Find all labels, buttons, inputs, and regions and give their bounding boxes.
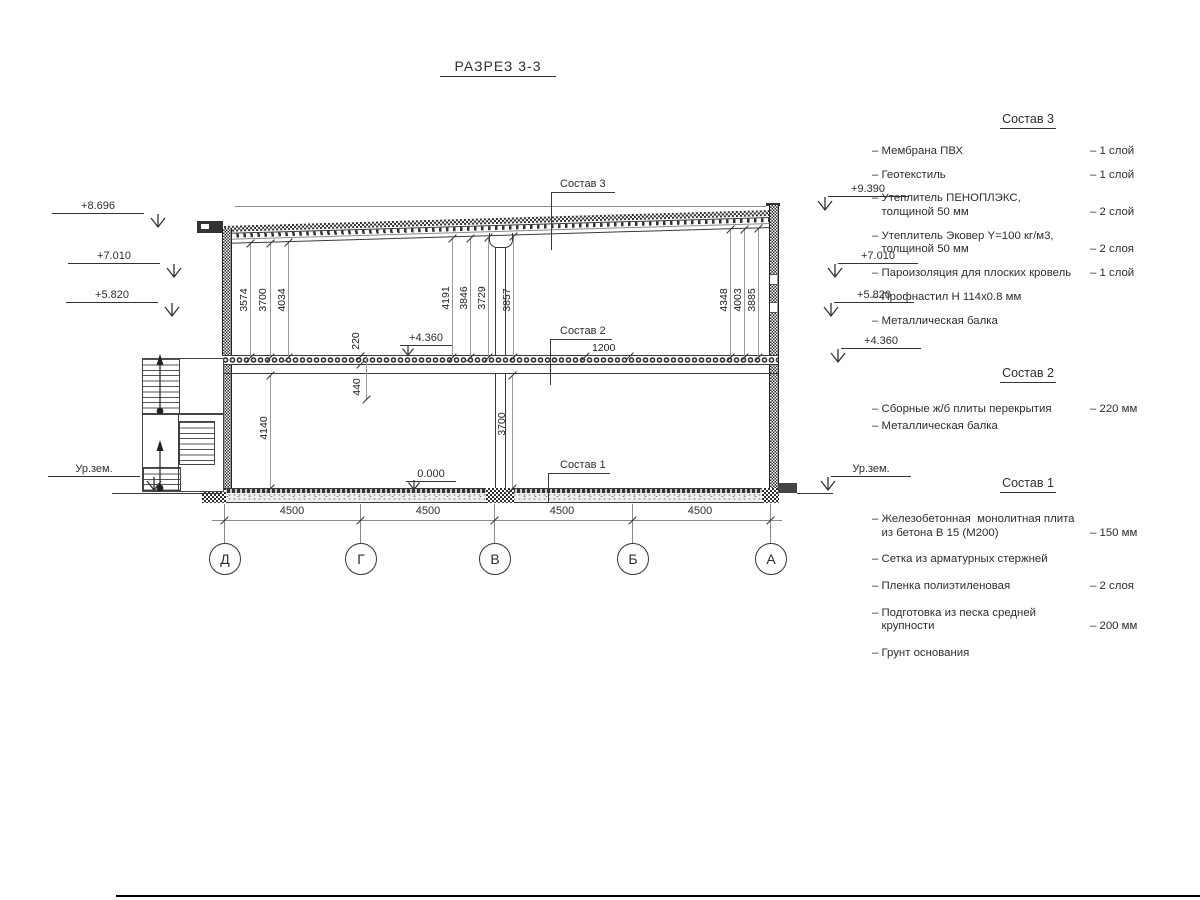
elevation-arrow-icon: [147, 214, 169, 231]
roof-gutter-cap: [197, 221, 223, 233]
axis-bubble-d: Д: [209, 543, 241, 575]
dim-line: [366, 356, 367, 400]
legend-section-sostav2: Состав 2 – Сборные ж/б плиты перекрытия–…: [872, 366, 1184, 436]
stair-divider: [178, 414, 179, 490]
elevation-arrow-icon: [814, 197, 836, 214]
footing-right: [762, 488, 779, 503]
legend-item: – Профнастил Н 114х0.8 мм: [872, 291, 1184, 305]
elevation-arrow-icon: [161, 303, 183, 320]
level-left-ground: Ур.зем.: [48, 463, 140, 477]
elevation-arrow-icon: [399, 346, 417, 358]
gutter-cap-inner: [201, 224, 209, 229]
callout-underline: [551, 192, 615, 193]
dim-line: [744, 229, 745, 358]
level-left-7010: +7.010: [68, 250, 160, 264]
dim-line: [488, 237, 489, 358]
dim-line: [270, 375, 271, 489]
elevation-arrow-icon: [163, 264, 185, 281]
floor-slab: [222, 356, 778, 364]
bay-dim: 4500: [360, 505, 496, 517]
legend-item: – Грунт основания: [872, 647, 1184, 661]
dim-line: [270, 243, 271, 358]
bay-dim: 4500: [224, 505, 360, 517]
level-left-8696: +8.696: [52, 200, 144, 214]
frame-edge-line: [116, 895, 1200, 897]
dim-line: [288, 242, 289, 358]
ground-line-left: [112, 493, 222, 494]
dim-1200: 1200: [592, 342, 615, 354]
elevation-arrow-icon: [405, 480, 423, 492]
elevation-arrow-icon: [824, 264, 846, 281]
dim-line: [512, 375, 513, 489]
callout-leader: [550, 339, 551, 385]
legend-item: – Металлическая балка: [872, 420, 1184, 434]
callout-sostav3: Состав 3: [560, 178, 606, 190]
dim-line: [758, 228, 759, 358]
column-upper: [495, 248, 496, 355]
slab-bottom-line: [222, 364, 778, 365]
callout-leader: [548, 473, 549, 502]
legend-item: – Геотекстиль– 1 слой: [872, 169, 1184, 183]
drawing-canvas: РАЗРЕЗ 3-3: [0, 0, 1200, 900]
elevation-arrow-icon: [143, 477, 165, 494]
callout-sostav2: Состав 2: [560, 325, 606, 337]
legend-title: Состав 2: [872, 366, 1184, 381]
legend-item: – Мембрана ПВХ– 1 слой: [872, 145, 1184, 159]
axis-bubble-g: Г: [345, 543, 377, 575]
callout-leader: [551, 192, 552, 250]
axis-dim-line: [212, 520, 782, 521]
legend-section-sostav1: Состав 1 – Железобетонная монолитная пли…: [872, 476, 1184, 674]
footing-step-right: [778, 483, 797, 493]
legend-item: – Утеплитель ПЕНОПЛЭКС, толщиной 50 мм– …: [872, 192, 1184, 219]
drawing-title: РАЗРЕЗ 3-3: [440, 58, 556, 77]
dim-line: [470, 238, 471, 358]
dim-line: [730, 229, 731, 358]
elevation-arrow-icon: [817, 477, 839, 494]
elevation-arrow-icon: [827, 349, 849, 366]
legend-item: – Сетка из арматурных стержней: [872, 553, 1184, 567]
dim-line: [513, 236, 514, 358]
axis-bubble-a: А: [755, 543, 787, 575]
level-4360: +4.360: [400, 332, 452, 346]
axis-bubble-v: В: [479, 543, 511, 575]
legend-section-sostav3: Состав 3 – Мембрана ПВХ– 1 слой – Геотек…: [872, 112, 1184, 338]
elevation-arrow-icon: [820, 303, 842, 320]
parapet-edge-line: [235, 206, 766, 207]
level-left-5820: +5.820: [66, 289, 158, 303]
legend-item: – Подготовка из песка средней крупности–…: [872, 607, 1184, 634]
ceiling-line: [222, 373, 778, 374]
stair-direction-arrow: [153, 354, 167, 416]
dim-line: [250, 243, 251, 358]
legend-item: – Металлическая балка: [872, 315, 1184, 329]
legend-item: – Утеплитель Эковер Y=100 кг/м3, толщино…: [872, 230, 1184, 257]
level-right-ground: Ур.зем.: [831, 463, 911, 477]
wall-opening: [770, 274, 777, 285]
legend-item: – Сборные ж/б плиты перекрытия– 220 мм: [872, 403, 1184, 417]
wall-opening: [770, 302, 777, 313]
axis-extension: [770, 504, 771, 544]
legend-item: – Пленка полиэтиленовая– 2 слоя: [872, 580, 1184, 594]
bay-dim: 4500: [494, 505, 630, 517]
wall-right: [769, 205, 779, 490]
callout-underline: [548, 473, 610, 474]
dim-line: [452, 238, 453, 358]
legend-title: Состав 3: [872, 112, 1184, 127]
bay-dim: 4500: [632, 505, 768, 517]
legend-item: – Пароизоляция для плоских кровель– 1 сл…: [872, 267, 1184, 281]
legend-item: – Железобетонная монолитная плита из бет…: [872, 513, 1184, 540]
callout-sostav1: Состав 1: [560, 459, 606, 471]
stair-mid-flight: [179, 421, 215, 465]
callout-underline: [550, 339, 612, 340]
legend-title: Состав 1: [872, 476, 1184, 491]
axis-bubble-b: Б: [617, 543, 649, 575]
